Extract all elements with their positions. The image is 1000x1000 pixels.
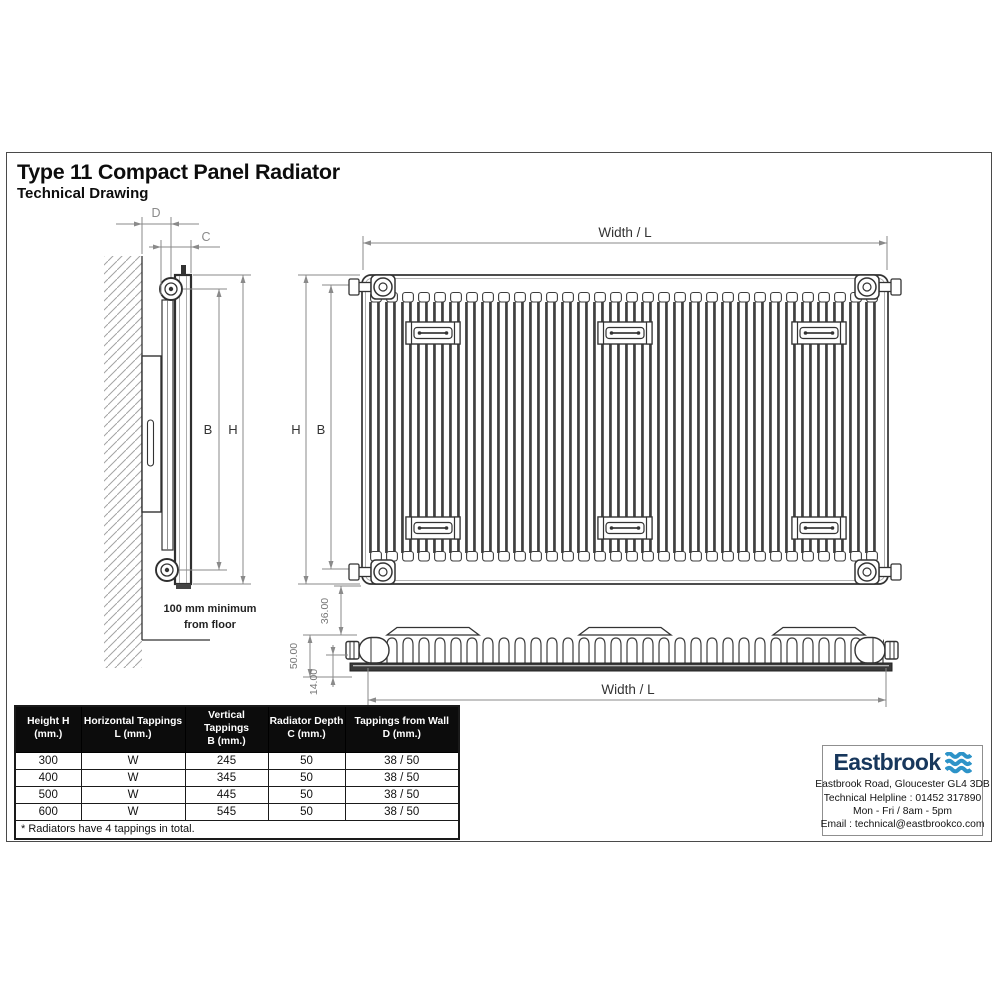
- plan-width-label: Width / L: [601, 682, 655, 697]
- tapping-bottom-left: [371, 560, 395, 584]
- table-footnote: * Radiators have 4 tappings in total.: [15, 820, 459, 839]
- wall-bracket: [792, 517, 846, 539]
- wall-bracket: [598, 322, 652, 344]
- cell-height: 600: [15, 803, 81, 820]
- eastbrook-wave-icon: [945, 752, 972, 774]
- wall-bracket: [598, 517, 652, 539]
- plan-bracket-tab: [579, 628, 671, 636]
- cell-height: 300: [15, 752, 81, 769]
- dim-side-h: [193, 275, 251, 584]
- plan-bracket-tab: [773, 628, 865, 636]
- logo-box: Eastbrook Eastbrook Road, Gloucester GL4…: [822, 745, 983, 836]
- col-header-tappings-from-wall: Tappings from WallD (mm.): [345, 706, 459, 752]
- col-header-vertical-tappings: Vertical TappingsB (mm.): [185, 706, 268, 752]
- cell-horizontal: W: [81, 752, 185, 769]
- cell-depth: 50: [268, 786, 345, 803]
- tapping-top-right: [855, 275, 879, 299]
- bleed-valve-nub: [181, 265, 186, 275]
- cell-wall: 38 / 50: [345, 786, 459, 803]
- front-view: H B Width / L: [291, 225, 901, 584]
- logo-address: Eastbrook Road, Gloucester GL4 3DB: [815, 778, 990, 791]
- side-tapping-bottom: [156, 559, 178, 581]
- dim-depth-36: [303, 586, 361, 635]
- dim-d-label: D: [151, 206, 160, 220]
- dim-c-label: C: [201, 230, 210, 244]
- plan-bracket-tab: [387, 628, 479, 636]
- cell-vertical: 345: [185, 769, 268, 786]
- col-header-horizontal-tappings: Horizontal TappingsL (mm.): [81, 706, 185, 752]
- plan-fin-loops: [370, 636, 884, 664]
- cell-vertical: 245: [185, 752, 268, 769]
- side-dim-b-label: B: [204, 422, 213, 437]
- cell-horizontal: W: [81, 786, 185, 803]
- cell-wall: 38 / 50: [345, 752, 459, 769]
- cell-horizontal: W: [81, 803, 185, 820]
- col-header-height: Height H(mm.): [15, 706, 81, 752]
- spec-table-header-row: Height H(mm.) Horizontal TappingsL (mm.)…: [15, 706, 459, 752]
- wall-bracket: [406, 517, 460, 539]
- technical-drawing: D C B: [0, 150, 1000, 715]
- tapping-bottom-right: [855, 560, 879, 584]
- cell-vertical: 445: [185, 786, 268, 803]
- spec-table: Height H(mm.) Horizontal TappingsL (mm.)…: [14, 705, 460, 840]
- front-dim-h-label: H: [291, 422, 300, 437]
- floor-note-line2: from floor: [184, 619, 237, 631]
- table-row: 500 W 445 50 38 / 50: [15, 786, 459, 803]
- cell-height: 400: [15, 769, 81, 786]
- wall-bracket: [792, 322, 846, 344]
- cell-vertical: 545: [185, 803, 268, 820]
- cell-depth: 50: [268, 769, 345, 786]
- plan-valve-right: [855, 638, 898, 664]
- side-panel: [175, 275, 191, 584]
- page: Type 11 Compact Panel Radiator Technical…: [0, 0, 1000, 1000]
- cell-depth: 50: [268, 803, 345, 820]
- side-view: D C B: [104, 206, 257, 668]
- brand-row: Eastbrook: [833, 749, 971, 776]
- cell-wall: 38 / 50: [345, 803, 459, 820]
- dim-depth-14: [326, 645, 348, 687]
- dim-front-width: [363, 236, 887, 270]
- dim-front-h: [298, 275, 360, 584]
- plan-view: 36.00 50.00 14.00 Width /: [288, 586, 898, 707]
- wall-hatch: [104, 256, 142, 668]
- table-row: 400 W 345 50 38 / 50: [15, 769, 459, 786]
- col-header-radiator-depth: Radiator DepthC (mm.): [268, 706, 345, 752]
- plan-valve-left: [346, 638, 389, 664]
- logo-hours: Mon - Fri / 8am - 5pm: [853, 805, 952, 818]
- plan-depth-36-label: 36.00: [319, 598, 331, 624]
- bracket-slot: [148, 420, 154, 466]
- logo-helpline: Technical Helpline : 01452 317890: [824, 792, 981, 805]
- front-width-label: Width / L: [598, 225, 652, 240]
- table-row: 600 W 545 50 38 / 50: [15, 803, 459, 820]
- table-row: 300 W 245 50 38 / 50: [15, 752, 459, 769]
- cell-height: 500: [15, 786, 81, 803]
- wall-bracket: [406, 322, 460, 344]
- panel-foot: [176, 584, 191, 589]
- front-dim-b-label: B: [317, 422, 326, 437]
- cell-wall: 38 / 50: [345, 769, 459, 786]
- table-footnote-row: * Radiators have 4 tappings in total.: [15, 820, 459, 839]
- brand-wordmark: Eastbrook: [833, 749, 940, 776]
- side-dim-h-label: H: [228, 422, 237, 437]
- plan-depth-14-label: 14.00: [308, 669, 320, 695]
- cell-horizontal: W: [81, 769, 185, 786]
- plan-depth-50-label: 50.00: [288, 643, 300, 669]
- cell-depth: 50: [268, 752, 345, 769]
- floor-note-line1: 100 mm minimum: [164, 603, 257, 615]
- side-tapping-top: [160, 278, 182, 300]
- logo-email: Email : technical@eastbrookco.com: [821, 818, 985, 831]
- tapping-top-left: [371, 275, 395, 299]
- plan-back-panel: [350, 663, 892, 671]
